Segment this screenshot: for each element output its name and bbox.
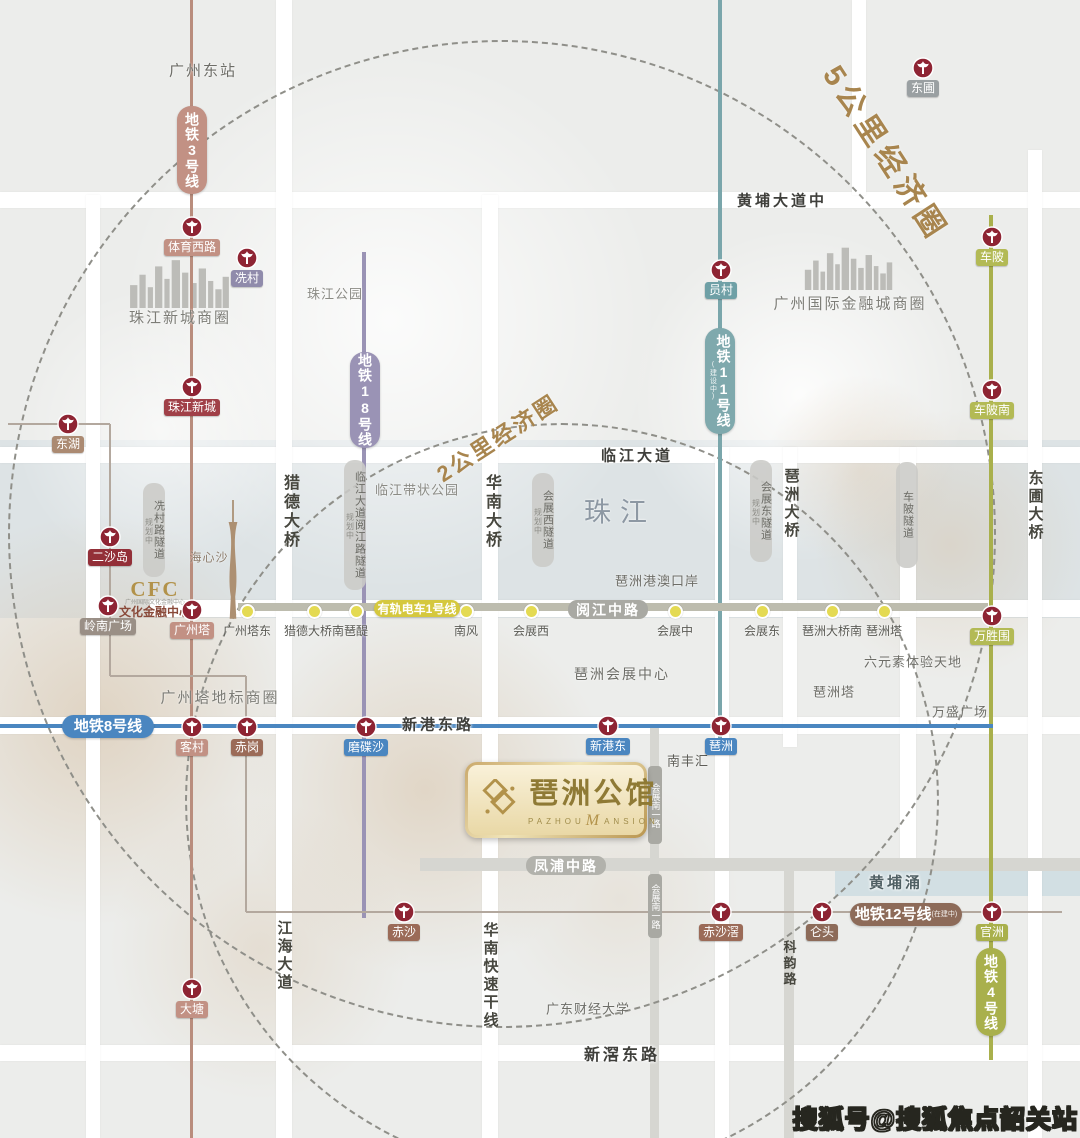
area-label-text: 广州东站	[169, 63, 237, 80]
tram-stop-label: 猎德大桥南	[284, 622, 344, 639]
bridge-label: 琶洲大桥	[781, 468, 802, 540]
tunnel-badge: 车陂隧道	[896, 462, 918, 568]
tunnel-badge: 会展西隧道规划中	[532, 473, 554, 567]
area-label: 珠江公园	[307, 284, 363, 303]
guangzhou-metro-icon	[710, 259, 732, 281]
station-name-badge: 东湖	[52, 436, 84, 453]
guangzhou-metro-icon	[393, 901, 415, 923]
area-label: 海心沙	[189, 549, 228, 566]
area-label-text: 珠江公园	[307, 287, 363, 302]
pazhou-mansion-name-en: PAZHOUMANSION	[528, 812, 659, 830]
guangzhou-metro-icon	[912, 57, 934, 79]
metro-station: 车陂	[976, 226, 1008, 266]
road-label-text: 临江大道	[601, 448, 673, 465]
metro-station: 东圃	[907, 57, 939, 97]
tram-stop-dot	[458, 604, 473, 619]
bridge-label-text: 琶洲大桥	[783, 468, 800, 540]
metro-station: 万胜围	[970, 605, 1014, 645]
pazhou-mansion-logo-text: 琶洲公馆PAZHOUMANSION	[528, 770, 659, 830]
station-name-badge: 东圃	[907, 80, 939, 97]
bridge-label: 江海大道	[274, 920, 295, 992]
bridge-label: 东圃大桥	[1025, 470, 1046, 542]
area-label-text: 南丰汇	[667, 754, 709, 769]
metro-line-badge: 地铁8号线	[62, 715, 154, 738]
guangzhou-metro-icon	[181, 716, 203, 738]
line-12-seg	[110, 675, 246, 677]
station-name-badge: 赤岗	[231, 739, 263, 756]
metro-line-badge-label: 地铁11号线	[717, 334, 731, 428]
metro-station: 广州塔	[170, 599, 214, 639]
metro-line-badge-label: 地铁3号线	[185, 112, 199, 189]
station-name-badge: 车陂	[976, 249, 1008, 266]
guangzhou-metro-icon	[181, 978, 203, 1000]
watermark: 搜狐号@搜狐焦点韶关站	[793, 1100, 1078, 1136]
station-name-badge: 大塘	[176, 1001, 208, 1018]
guangzhou-metro-icon	[981, 226, 1003, 248]
guangzhou-metro-icon	[97, 595, 119, 617]
guangzhou-metro-icon	[710, 901, 732, 923]
bridge-label: 猎德大桥	[277, 474, 301, 550]
area-label-text: 琶洲塔	[813, 685, 855, 700]
metro-station: 赤沙滘	[699, 901, 743, 941]
tram-stop-label: 会展西	[513, 622, 549, 639]
guangzhou-metro-icon	[57, 413, 79, 435]
metro-station: 二沙岛	[88, 526, 132, 566]
tunnel-badge: 冼村路隧道规划中	[143, 483, 165, 577]
area-label: 琶洲港澳口岸	[615, 571, 699, 590]
area-label-text: 珠江新城商圈	[129, 310, 231, 327]
area-label: 广州国际金融城商圈	[773, 293, 926, 314]
pazhou-mansion-logo-panel: 琶洲公馆PAZHOUMANSION	[468, 765, 644, 835]
metro-line-badge-status: (建设中)	[710, 361, 717, 401]
guangzhou-metro-icon	[811, 901, 833, 923]
station-name-badge: 客村	[176, 739, 208, 756]
station-name-badge: 新港东	[586, 738, 630, 755]
station-name-badge: 磨碟沙	[344, 739, 388, 756]
road-name-badge: 阅江中路	[568, 600, 648, 619]
area-label: 珠江新城商圈	[129, 307, 231, 328]
bridge-label: 华南快速干线	[480, 922, 501, 1030]
bridge-label-text: 东圃大桥	[1027, 470, 1044, 542]
station-name-badge: 万胜围	[970, 628, 1014, 645]
guangzhou-metro-icon	[236, 247, 258, 269]
road-name-badge-label: 阅江中路	[576, 603, 640, 617]
station-name-badge: 琶洲	[705, 738, 737, 755]
tunnel-name: 会展东隧道	[760, 481, 771, 541]
metro-line-badge: 地铁4号线	[976, 948, 1006, 1036]
tunnel-status: 规划中	[346, 513, 354, 540]
station-name-badge: 赤沙	[388, 924, 420, 941]
area-label-text: 万盛广场	[932, 705, 988, 720]
area-label: 珠江	[584, 491, 656, 530]
tram-stop: 会展中	[657, 604, 693, 639]
pazhou-mansion-name-cn: 琶洲公馆	[529, 770, 657, 812]
area-label: 南丰汇	[667, 751, 709, 770]
guangzhou-metro-icon	[236, 716, 258, 738]
station-name-badge: 官洲	[976, 924, 1008, 941]
metro-line-badge-status: (在建中)	[932, 911, 958, 918]
road-name-badge-label: 会展南一路	[651, 884, 660, 929]
road	[1028, 150, 1042, 1138]
logo-en-monogram: M	[586, 812, 603, 830]
station-name-badge: 岭南广场	[80, 618, 136, 635]
tunnel-name: 临江大道阅江路隧道	[354, 471, 365, 579]
road-label: 新港东路	[402, 714, 474, 735]
tram-stop-dot	[348, 604, 363, 619]
bridge-label: 科韵路	[780, 940, 799, 988]
metro-line-badge: 地铁3号线	[177, 106, 207, 194]
road-label: 黄埔涌	[869, 872, 923, 893]
metro-station: 客村	[176, 716, 208, 756]
road-label-text: 新港东路	[402, 717, 474, 734]
metro-station: 磨碟沙	[344, 716, 388, 756]
metro-line-badge: 地铁12号线(在建中)	[850, 903, 962, 926]
tram-line-badge: 有轨电车1号线	[374, 600, 460, 617]
guangzhou-metro-icon	[181, 599, 203, 621]
chinese-knot-icon	[478, 779, 520, 821]
guangzhou-metro-icon	[355, 716, 377, 738]
road-label: 新滘东路	[584, 1041, 660, 1065]
area-label: 广州塔地标商圈	[160, 687, 279, 708]
road-label-text: 黄埔涌	[869, 875, 923, 892]
road-label-text: 黄埔大道中	[737, 193, 827, 210]
area-label-text: 广州国际金融城商圈	[773, 296, 926, 313]
guangzhou-metro-icon	[99, 526, 121, 548]
tunnel-name: 车陂隧道	[902, 491, 913, 539]
metro-station: 岭南广场	[80, 595, 136, 635]
tram-line-badge-label: 有轨电车1号线	[378, 603, 457, 615]
metro-line-badge-label: 地铁12号线	[855, 907, 932, 922]
tunnel-status: 规划中	[534, 508, 542, 535]
tram-stop-dot	[239, 604, 254, 619]
metro-station: 赤沙	[388, 901, 420, 941]
area-label-text: 广东财经大学	[546, 1002, 630, 1017]
road-name-badge: 会展南一路	[648, 874, 662, 938]
bridge-label-text: 猎德大桥	[281, 474, 298, 550]
tunnel-status: 规划中	[752, 499, 760, 526]
guangzhou-metro-icon	[981, 379, 1003, 401]
station-name-badge: 体育西路	[164, 239, 220, 256]
metro-line-badge-label: 地铁18号线	[358, 353, 372, 447]
metro-station: 冼村	[231, 247, 263, 287]
area-label-text: 六元素体验天地	[864, 655, 962, 670]
station-name-badge: 赤沙滘	[699, 924, 743, 941]
logo-en-part2: ANSION	[604, 817, 659, 826]
area-label-text: 琶洲港澳口岸	[615, 574, 699, 589]
tram-stop-label: 琶洲塔	[866, 622, 902, 639]
tunnel-name: 会展西隧道	[542, 490, 553, 550]
tram-stop: 广州塔东	[223, 604, 271, 639]
bridge-label-text: 华南快速干线	[482, 922, 499, 1030]
pazhou-mansion-logo: 琶洲公馆PAZHOUMANSION	[465, 762, 647, 838]
metro-station: 珠江新城	[164, 376, 220, 416]
area-label: 六元素体验天地	[864, 652, 962, 671]
tunnel-name: 冼村路隧道	[153, 500, 164, 560]
metro-location-map: 5公里经济圈2公里经济圈有轨电车1号线广州塔东猎德大桥南琶醍南风会展西会展中会展…	[0, 0, 1080, 1138]
bridge-label-text: 江海大道	[276, 920, 293, 992]
tram-stop: 会展东	[744, 604, 780, 639]
metro-station: 东湖	[52, 413, 84, 453]
guangzhou-metro-icon	[981, 901, 1003, 923]
area-label: 临江带状公园	[375, 480, 459, 499]
tram-stop: 琶醍	[344, 604, 368, 639]
bridge-label-text: 科韵路	[782, 940, 797, 988]
metro-station: 大塘	[176, 978, 208, 1018]
area-label: 万盛广场	[932, 702, 988, 721]
metro-line-badge-label: 地铁4号线	[984, 954, 998, 1031]
financial-city-skyline-icon	[803, 244, 895, 296]
tram-stop-dot	[824, 604, 839, 619]
metro-station: 琶洲	[705, 715, 737, 755]
area-label-text: 珠江	[584, 498, 656, 528]
station-name-badge: 广州塔	[170, 622, 214, 639]
bridge-label-text: 华南大桥	[483, 474, 500, 550]
tram-stop-dot	[523, 604, 538, 619]
road-name-badge-label: 凤浦中路	[534, 859, 598, 873]
tram-stop-dot	[667, 604, 682, 619]
guangzhou-metro-icon	[181, 216, 203, 238]
tram-stop-label: 广州塔东	[223, 622, 271, 639]
logo-en-part1: PAZHOU	[528, 817, 585, 826]
metro-station: 员村	[705, 259, 737, 299]
tram-stop-label: 琶洲大桥南	[802, 622, 862, 639]
metro-station: 车陂南	[970, 379, 1014, 419]
area-label: 广州东站	[169, 60, 237, 81]
area-label-text: 海心沙	[189, 551, 228, 565]
metro-station: 仑头	[806, 901, 838, 941]
tram-stop-label: 琶醍	[344, 622, 368, 639]
road-name-badge: 凤浦中路	[526, 856, 606, 875]
metro-station: 官洲	[976, 901, 1008, 941]
metro-line-badge: 地铁11号线(建设中)	[705, 328, 735, 434]
station-name-badge: 车陂南	[970, 402, 1014, 419]
metro-line-badge-label: 地铁8号线	[74, 719, 142, 734]
line-12-seg	[245, 676, 247, 912]
metro-station: 体育西路	[164, 216, 220, 256]
tram-stop-dot	[754, 604, 769, 619]
tunnel-badge: 临江大道阅江路隧道规划中	[344, 460, 366, 590]
road-label-text: 新滘东路	[584, 1047, 660, 1064]
area-label-text: 琶洲会展中心	[574, 666, 670, 682]
area-label: 琶洲会展中心	[574, 664, 670, 684]
tunnel-status: 规划中	[145, 518, 153, 545]
tram-stop-label: 会展中	[657, 622, 693, 639]
guangzhou-metro-icon	[597, 715, 619, 737]
tram-stop-dot	[876, 604, 891, 619]
guangzhou-metro-icon	[181, 376, 203, 398]
station-name-badge: 珠江新城	[164, 399, 220, 416]
guangzhou-metro-icon	[981, 605, 1003, 627]
road-label: 黄埔大道中	[737, 190, 827, 211]
tram-stop: 猎德大桥南	[284, 604, 344, 639]
area-label-text: 广州塔地标商圈	[160, 690, 279, 707]
station-name-badge: 员村	[705, 282, 737, 299]
bridge-label: 华南大桥	[479, 474, 503, 550]
metro-station: 新港东	[586, 715, 630, 755]
area-label: 广东财经大学	[546, 999, 630, 1018]
tunnel-badge: 会展东隧道规划中	[750, 460, 772, 562]
tram-stop: 会展西	[513, 604, 549, 639]
station-name-badge: 仑头	[806, 924, 838, 941]
area-label-text: 临江带状公园	[375, 483, 459, 498]
guangzhou-metro-icon	[710, 715, 732, 737]
station-name-badge: 冼村	[231, 270, 263, 287]
station-name-badge: 二沙岛	[88, 549, 132, 566]
tram-stop-dot	[306, 604, 321, 619]
tram-stop-label: 南风	[454, 622, 478, 639]
road-label: 临江大道	[601, 445, 673, 466]
tram-stop-label: 会展东	[744, 622, 780, 639]
metro-line-badge: 地铁18号线	[350, 352, 380, 448]
area-label: 琶洲塔	[813, 682, 855, 701]
tram-stop: 琶洲大桥南	[802, 604, 862, 639]
tram-stop: 琶洲塔	[866, 604, 902, 639]
metro-station: 赤岗	[231, 716, 263, 756]
zhujiang-new-town-skyline-icon	[128, 256, 232, 310]
